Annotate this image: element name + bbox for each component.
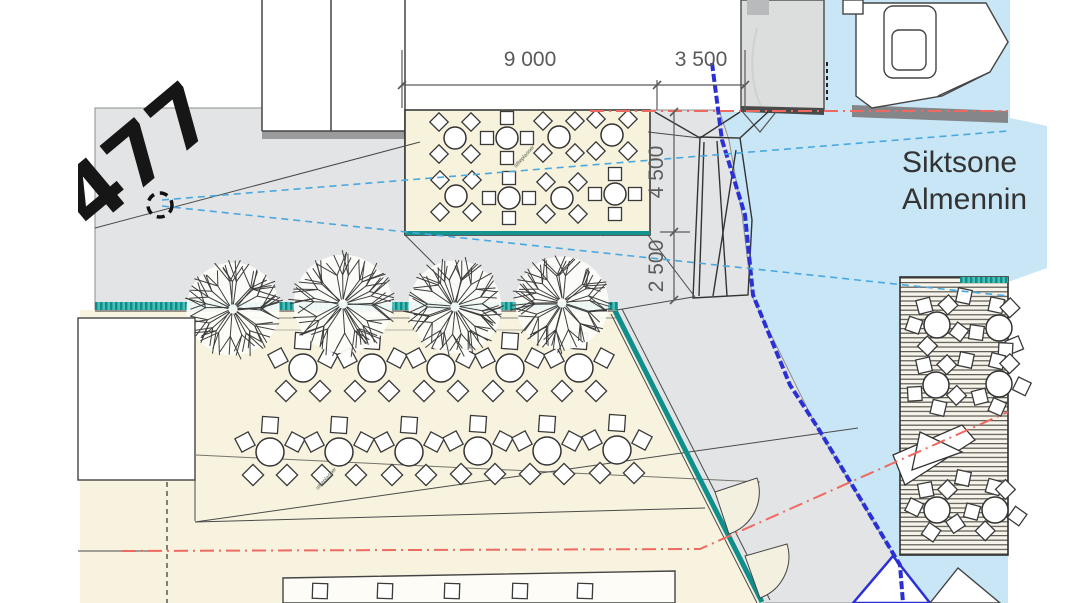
table-top (464, 437, 492, 465)
table-top (982, 497, 1008, 523)
dimension-label-9000: 9 000 (504, 48, 557, 71)
chair (501, 112, 514, 125)
chair (521, 132, 534, 145)
chair (444, 583, 460, 599)
table-top (427, 354, 455, 382)
chair (916, 297, 933, 314)
chair (930, 399, 947, 416)
table-top (565, 354, 593, 382)
chair (538, 415, 555, 432)
sight-zone-label-line1: Siktsone (902, 146, 1017, 179)
platform-teal-edge (405, 231, 650, 235)
chair (330, 416, 347, 433)
sight-zone-label-line2: Almennin (902, 183, 1027, 216)
chair (501, 332, 518, 349)
chair (958, 352, 975, 369)
left-margin (0, 0, 78, 603)
chair (469, 415, 486, 432)
table-top (603, 436, 631, 464)
table-top (289, 354, 317, 382)
table-top (444, 127, 466, 149)
quay-strip-detail (747, 0, 769, 15)
chair (956, 288, 973, 305)
chair (523, 192, 536, 205)
table-top (986, 315, 1012, 341)
chair (971, 388, 988, 405)
chair (400, 416, 417, 433)
dimension-label-2500: 2 500 (645, 240, 668, 293)
table-top (445, 185, 467, 207)
chair (261, 416, 278, 433)
dimension-label-4500: 4 500 (645, 146, 668, 199)
table-top (496, 127, 518, 149)
table-top (551, 187, 573, 209)
chair (918, 482, 934, 498)
chair (963, 503, 980, 520)
dimension-label-3500: 3 500 (675, 48, 728, 71)
chair (629, 188, 642, 201)
site-plan-canvas: 9 000 3 500 4 500 2 500 Siktsone Almenni… (0, 0, 1071, 603)
chair (503, 172, 516, 185)
chair (589, 188, 602, 201)
chair (608, 414, 625, 431)
chair (907, 386, 922, 401)
table-top (986, 371, 1012, 397)
chair (377, 583, 393, 599)
table-top (496, 354, 524, 382)
table-top (256, 438, 284, 466)
chair (512, 583, 528, 599)
table-top (548, 126, 570, 148)
table-top (923, 372, 949, 398)
chair (481, 132, 494, 145)
table-top (358, 354, 386, 382)
chair (503, 212, 516, 225)
right-margin (1047, 0, 1071, 603)
table-top (395, 438, 423, 466)
table-top (325, 438, 353, 466)
chair (955, 470, 972, 487)
table-top (604, 183, 626, 205)
building-bottom-left (78, 318, 195, 480)
chair (916, 357, 933, 374)
chair (483, 192, 496, 205)
site-plan: 9 000 3 500 4 500 2 500 Siktsone Almenni… (0, 0, 1071, 603)
table-top (498, 187, 520, 209)
chair (609, 208, 622, 221)
table-top (924, 497, 950, 523)
chair (969, 325, 985, 341)
table-top (601, 124, 623, 146)
chair (609, 168, 622, 181)
table-top (533, 437, 561, 465)
chair (312, 583, 328, 599)
table-top (924, 312, 950, 338)
chair (577, 583, 593, 599)
building-shadow (262, 131, 405, 139)
chair (501, 152, 514, 165)
